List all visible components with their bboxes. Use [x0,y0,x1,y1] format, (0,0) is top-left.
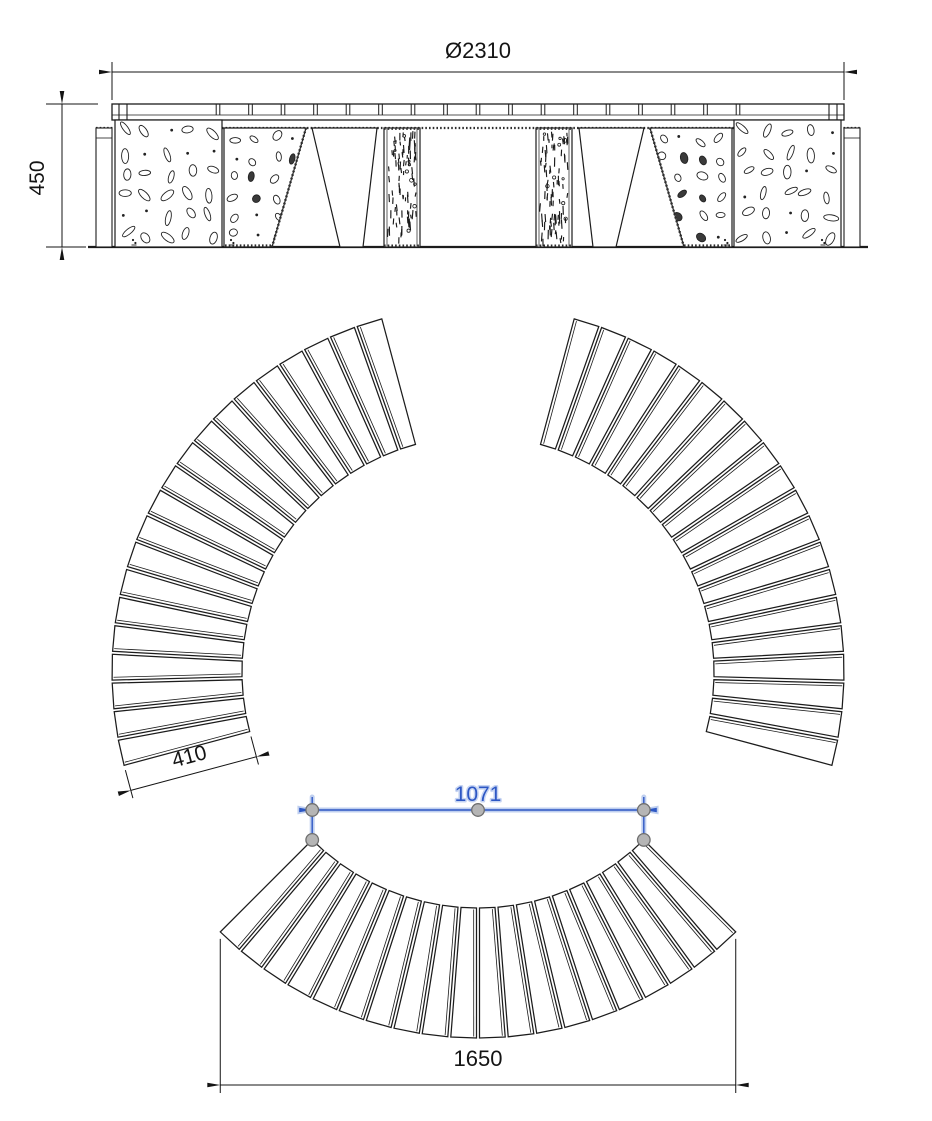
hash-mark [403,145,404,153]
perforation-dot [789,212,792,215]
hash-mark [547,193,548,200]
hash-mark [396,204,397,211]
hash-mark [540,203,541,211]
hash-mark [553,145,554,151]
drawing-canvas: Ø2310 450 410 1650 1071 [0,0,932,1121]
part-mark [230,239,232,241]
leaf-perforation [783,165,791,179]
perforation-dot [292,179,295,182]
perforated-panel [734,120,841,247]
hash-mark [551,221,552,226]
hash-mark [551,229,552,237]
hash-mark [410,203,411,209]
hash-mark [389,176,390,182]
hash-mark [412,210,413,219]
perforation-dot [805,169,808,172]
perforated-panel-trapezoid [650,128,732,247]
perforation-dot [785,231,788,234]
perforation-dot [743,196,746,199]
hash-mark [403,160,404,166]
perforation-dot [717,236,720,239]
leaf-perforation [293,190,304,201]
hash-mark [552,214,553,220]
hash-mark [547,180,548,184]
part-mark [132,239,134,241]
hash-mark [542,220,543,227]
perforation-dot [213,150,216,153]
hash-mark [556,232,557,240]
hash-mark [399,154,400,160]
perforation-dot [143,153,146,156]
hash-mark [401,168,402,173]
dim-arrow [60,91,65,104]
hash-mark [540,161,541,166]
front-elevation-view: Ø2310 450 [26,38,868,260]
hash-mark [559,214,560,223]
hash-mark [412,167,413,174]
dim-arrow [844,70,857,75]
hash-mark [567,193,568,198]
hash-mark [406,161,407,165]
bench-ring-slats [112,319,844,1038]
leaf-perforation [123,169,131,181]
hash-mark [399,217,400,224]
dim-arrow [256,751,269,757]
seat-strip [112,104,844,120]
leaf-perforation [716,212,725,217]
front-elevation-geometry [88,104,868,247]
dimension-opening-chord-selected[interactable]: 1071 [299,783,657,846]
perforation-dot [122,214,125,217]
hash-mark [564,154,565,161]
hash-mark [550,166,551,173]
dim-arrow [99,70,112,75]
leaf-perforation [230,138,241,144]
hash-mark [409,137,410,146]
leaf-perforation [286,213,298,224]
leaf-perforation [119,190,131,197]
hash-mark [541,233,542,242]
hash-mark [545,150,546,157]
leaf-perforation [654,176,662,187]
hash-mark [415,192,416,196]
cad-drawing: Ø2310 450 410 1650 1071 [0,0,932,1121]
dimension-segment-width-label: 1650 [454,1046,503,1071]
leaf-perforation [656,214,668,223]
perforation-dot [235,158,238,161]
hash-mark [559,199,560,204]
dimension-diameter-label: Ø2310 [445,38,511,63]
hash-mark [411,215,412,219]
leg-outline [312,128,377,247]
part-mark [726,242,728,244]
dim-arrow [118,790,131,796]
hash-mark [545,163,546,168]
leaf-perforation [189,165,197,177]
leg-outline [579,128,644,247]
bench-slat [112,654,242,680]
part-mark [134,242,136,244]
leaf-perforation [139,170,151,176]
extension-line [125,770,133,798]
perforated-panel-trapezoid [224,128,306,247]
dim-arrow [60,247,65,260]
hash-mark [546,145,547,153]
hash-mark [395,207,396,212]
dimension-height: 450 [26,91,98,260]
grip-handle[interactable] [306,834,319,847]
edge-panel-column [844,128,860,247]
dimension-diameter: Ø2310 [99,38,857,100]
perforation-dot [145,209,148,212]
perforation-dot [255,214,258,217]
hash-mark [404,137,405,141]
hash-mark [555,230,556,234]
hash-mark [560,238,561,243]
perforation-dot [291,137,294,140]
grip-handle[interactable] [638,804,651,817]
part-mark [724,239,726,241]
hash-mark [396,223,397,228]
perforation-dot [677,135,680,138]
hash-mark [396,140,397,144]
hash-mark [395,137,396,142]
leaf-perforation [762,207,770,219]
hash-mark [545,214,546,222]
leaf-perforation [121,149,128,164]
part-mark [232,242,234,244]
leaf-perforation [801,210,809,222]
dim-arrow [736,1083,749,1088]
plan-view: 410 1650 1071 [112,319,844,1093]
perforation-dot [832,152,835,155]
hash-mark [561,219,562,228]
leaf-perforation [290,228,300,239]
grip-handle[interactable] [638,834,651,847]
hash-mark [395,153,396,159]
perforation-dot [831,131,834,134]
dimension-height-label: 450 [26,160,49,195]
grip-handle[interactable] [472,804,485,817]
perforation-dot [257,234,260,237]
part-mark [821,239,823,241]
edge-panel-column [96,128,112,247]
leaf-perforation [231,171,238,179]
perforation-dot [186,152,189,155]
hash-mark [400,142,401,146]
leaf-perforation [658,236,670,243]
extension-line [251,736,259,764]
grip-handle[interactable] [306,804,319,817]
hash-mark [398,158,399,162]
dim-arrow [207,1083,220,1088]
hash-mark [544,165,545,172]
hash-mark [563,138,564,144]
hash-mark [394,141,395,146]
hash-mark [542,147,543,153]
hash-mark [554,214,555,220]
leaf-perforation [656,189,667,201]
hash-mark [564,136,565,144]
hash-mark [387,229,388,237]
part-mark [823,242,825,244]
hash-mark [547,133,548,140]
dimension-opening-chord-label[interactable]: 1071 [455,783,502,806]
perforation-dot [170,129,173,132]
